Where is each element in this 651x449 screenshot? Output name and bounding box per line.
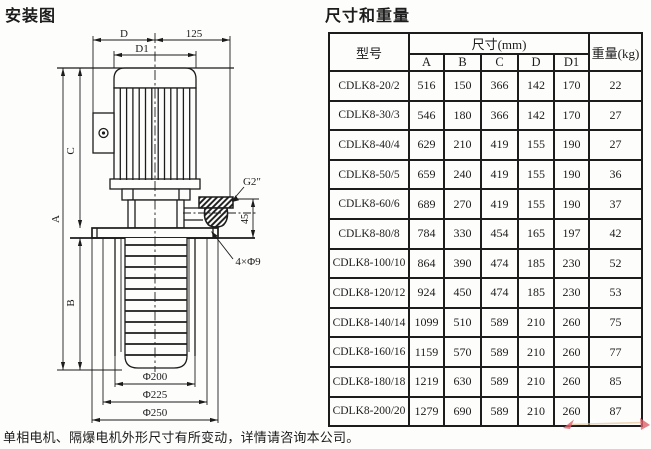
- dimensions-table-title: 尺寸和重量: [325, 2, 410, 26]
- discharge-port: [199, 197, 233, 227]
- cell-dim-d1: 170: [554, 71, 589, 101]
- cell-dim-a: 689: [409, 189, 444, 219]
- table-row: CDLK8-100/1086439047418523052: [329, 249, 642, 279]
- base-plate: [70, 228, 255, 238]
- cell-model: CDLK8-20/2: [329, 71, 409, 101]
- dimensions-table-container: 型号 尺寸(mm) 重量(kg) A B C D D1 CDLK8-20/251…: [328, 32, 643, 427]
- header-col-a: A: [409, 54, 444, 71]
- table-row: CDLK8-60/668927041915519037: [329, 189, 642, 219]
- table-body: CDLK8-20/251615036614217022CDLK8-30/3546…: [329, 71, 642, 426]
- cell-dim-a: 1279: [409, 397, 444, 427]
- cell-dim-d: 210: [518, 308, 554, 338]
- cell-dim-c: 589: [481, 308, 518, 338]
- table-row: CDLK8-40/462921041915519027: [329, 130, 642, 160]
- cell-dim-d: 210: [518, 337, 554, 367]
- cell-dim-c: 474: [481, 249, 518, 279]
- cell-dim-d: 142: [518, 71, 554, 101]
- cell-dim-d1: 260: [554, 308, 589, 338]
- cell-dim-d: 155: [518, 160, 554, 190]
- header-col-d1: D1: [554, 54, 589, 71]
- footer-note: 单相电机、隔爆电机外形尺寸有所变动，详情请咨询本公司。: [3, 427, 359, 446]
- table-row: CDLK8-80/878433045416519742: [329, 219, 642, 249]
- header-weight: 重量(kg): [589, 33, 642, 71]
- cell-model: CDLK8-80/8: [329, 219, 409, 249]
- cell-model: CDLK8-60/6: [329, 189, 409, 219]
- cell-dim-b: 390: [444, 249, 481, 279]
- table-row: CDLK8-140/14109951058921026075: [329, 308, 642, 338]
- table-row: CDLK8-160/16115957058921026077: [329, 337, 642, 367]
- cell-dim-d: 185: [518, 249, 554, 279]
- table-header-row: 型号 尺寸(mm) 重量(kg): [329, 33, 642, 54]
- cell-model: CDLK8-100/10: [329, 249, 409, 279]
- cell-model: CDLK8-40/4: [329, 130, 409, 160]
- cell-dim-d1: 260: [554, 337, 589, 367]
- cell-dim-b: 210: [444, 130, 481, 160]
- table-row: CDLK8-20/251615036614217022: [329, 71, 642, 101]
- cell-weight: 27: [589, 101, 642, 131]
- cell-weight: 75: [589, 308, 642, 338]
- table-row: CDLK8-50/565924041915519036: [329, 160, 642, 190]
- cell-dim-d: 165: [518, 219, 554, 249]
- cell-dim-d1: 190: [554, 189, 589, 219]
- dimensions-table: 型号 尺寸(mm) 重量(kg) A B C D D1 CDLK8-20/251…: [328, 32, 643, 427]
- cell-dim-c: 589: [481, 337, 518, 367]
- cell-weight: 52: [589, 249, 642, 279]
- cell-dim-d: 155: [518, 130, 554, 160]
- cell-dim-b: 270: [444, 189, 481, 219]
- dia-225-label: Φ225: [143, 389, 168, 401]
- watermark-arrow-right: [640, 418, 650, 430]
- cell-weight: 22: [589, 71, 642, 101]
- table-row: CDLK8-120/1292445047418523053: [329, 278, 642, 308]
- dim-label-d: D: [120, 28, 128, 40]
- cell-model: CDLK8-120/12: [329, 278, 409, 308]
- header-col-c: C: [481, 54, 518, 71]
- cell-dim-d: 155: [518, 189, 554, 219]
- cell-weight: 77: [589, 337, 642, 367]
- cell-dim-a: 516: [409, 71, 444, 101]
- cell-dim-b: 150: [444, 71, 481, 101]
- cell-dim-a: 924: [409, 278, 444, 308]
- cell-dim-d1: 170: [554, 101, 589, 131]
- cell-dim-d1: 260: [554, 367, 589, 397]
- cell-dim-c: 366: [481, 101, 518, 131]
- cell-dim-a: 1219: [409, 367, 444, 397]
- cell-model: CDLK8-160/16: [329, 337, 409, 367]
- cell-model: CDLK8-140/14: [329, 308, 409, 338]
- cell-dim-c: 419: [481, 189, 518, 219]
- cell-model: CDLK8-200/20: [329, 397, 409, 427]
- cell-model: CDLK8-30/3: [329, 101, 409, 131]
- cell-dim-a: 659: [409, 160, 444, 190]
- dim-label-c: C: [65, 147, 77, 154]
- cell-dim-a: 546: [409, 101, 444, 131]
- table-row: CDLK8-180/18121963058921026085: [329, 367, 642, 397]
- header-col-b: B: [444, 54, 481, 71]
- cell-model: CDLK8-50/5: [329, 160, 409, 190]
- cell-weight: 53: [589, 278, 642, 308]
- cell-dim-d: 142: [518, 101, 554, 131]
- terminal-box: [93, 113, 114, 153]
- header-dims-group: 尺寸(mm): [409, 33, 589, 54]
- dia-200-label: Φ200: [143, 371, 168, 383]
- cell-dim-b: 570: [444, 337, 481, 367]
- cell-dim-c: 419: [481, 130, 518, 160]
- table-row: CDLK8-30/354618036614217027: [329, 101, 642, 131]
- dim-label-a: A: [50, 215, 62, 223]
- datasheet-page: 安装图 尺寸和重量: [0, 0, 651, 449]
- cell-dim-b: 180: [444, 101, 481, 131]
- cell-dim-b: 510: [444, 308, 481, 338]
- pump-installation-drawing: D 125 D1 A C B 45 G2″ 4×Φ9 Φ200 Φ225 Φ25…: [0, 0, 325, 449]
- cell-dim-d: 185: [518, 278, 554, 308]
- cell-dim-c: 474: [481, 278, 518, 308]
- cell-dim-c: 419: [481, 160, 518, 190]
- dim-label-b: B: [65, 299, 77, 306]
- mounting-holes-label: 4×Φ9: [235, 256, 261, 268]
- cell-dim-a: 1159: [409, 337, 444, 367]
- cell-dim-b: 450: [444, 278, 481, 308]
- header-col-d: D: [518, 54, 554, 71]
- cell-weight: 36: [589, 160, 642, 190]
- cell-dim-b: 240: [444, 160, 481, 190]
- cell-dim-c: 589: [481, 397, 518, 427]
- port-thread-label: G2″: [243, 176, 261, 188]
- cell-dim-a: 1099: [409, 308, 444, 338]
- cell-dim-c: 454: [481, 219, 518, 249]
- cell-dim-c: 366: [481, 71, 518, 101]
- cell-dim-d1: 230: [554, 278, 589, 308]
- cell-dim-a: 629: [409, 130, 444, 160]
- cell-dim-d1: 190: [554, 130, 589, 160]
- cell-dim-b: 330: [444, 219, 481, 249]
- cell-weight: 37: [589, 189, 642, 219]
- dim-label-45: 45: [240, 214, 251, 224]
- cell-dim-d1: 190: [554, 160, 589, 190]
- cell-weight: 27: [589, 130, 642, 160]
- dim-label-d1: D1: [135, 43, 148, 55]
- cell-dim-d1: 230: [554, 249, 589, 279]
- cell-dim-b: 690: [444, 397, 481, 427]
- cell-dim-c: 589: [481, 367, 518, 397]
- cell-model: CDLK8-180/18: [329, 367, 409, 397]
- dia-250-label: Φ250: [143, 407, 168, 419]
- dim-label-125: 125: [186, 28, 203, 40]
- cell-dim-d: 210: [518, 367, 554, 397]
- cell-dim-b: 630: [444, 367, 481, 397]
- cell-dim-d1: 197: [554, 219, 589, 249]
- cell-dim-a: 864: [409, 249, 444, 279]
- cell-weight: 42: [589, 219, 642, 249]
- header-model: 型号: [329, 33, 409, 71]
- cell-weight: 85: [589, 367, 642, 397]
- cell-dim-a: 784: [409, 219, 444, 249]
- red-annotation-watermark: [545, 405, 651, 449]
